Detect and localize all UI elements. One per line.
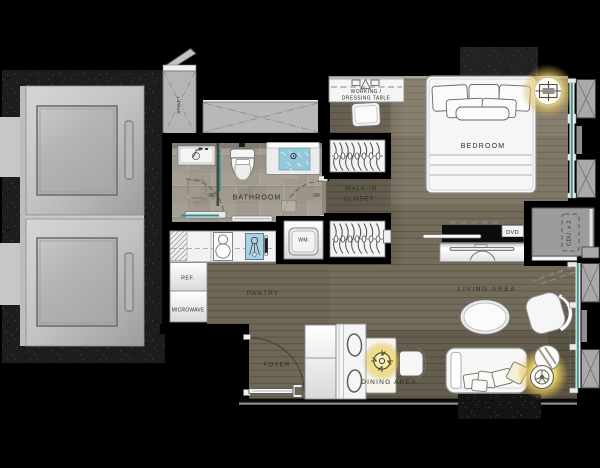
svg-text:LIVING AREA: LIVING AREA [458,286,517,293]
svg-text:WALK-IN: WALK-IN [345,186,377,193]
svg-text:WM.: WM. [298,238,309,244]
svg-text:CLOSET: CLOSET [344,196,374,203]
svg-text:DINING AREA: DINING AREA [361,379,417,386]
svg-text:BEDROOM: BEDROOM [461,143,506,150]
svg-text:SHAFT: SHAFT [176,95,182,113]
svg-text:FOYER: FOYER [263,362,290,369]
svg-text:WORKING /: WORKING / [351,89,382,95]
svg-text:-90: -90 [312,193,319,199]
svg-text:BATHROOM: BATHROOM [233,195,282,202]
svg-text:REF.: REF. [181,276,195,282]
svg-text:DRESSING TABLE: DRESSING TABLE [342,96,391,102]
svg-text:PANTRY: PANTRY [247,290,280,297]
svg-text:-90: -90 [207,193,214,199]
svg-text:MICROWAVE: MICROWAVE [172,308,205,314]
svg-text:CDU. x 2: CDU. x 2 [567,220,573,246]
svg-text:DVD: DVD [506,230,519,236]
